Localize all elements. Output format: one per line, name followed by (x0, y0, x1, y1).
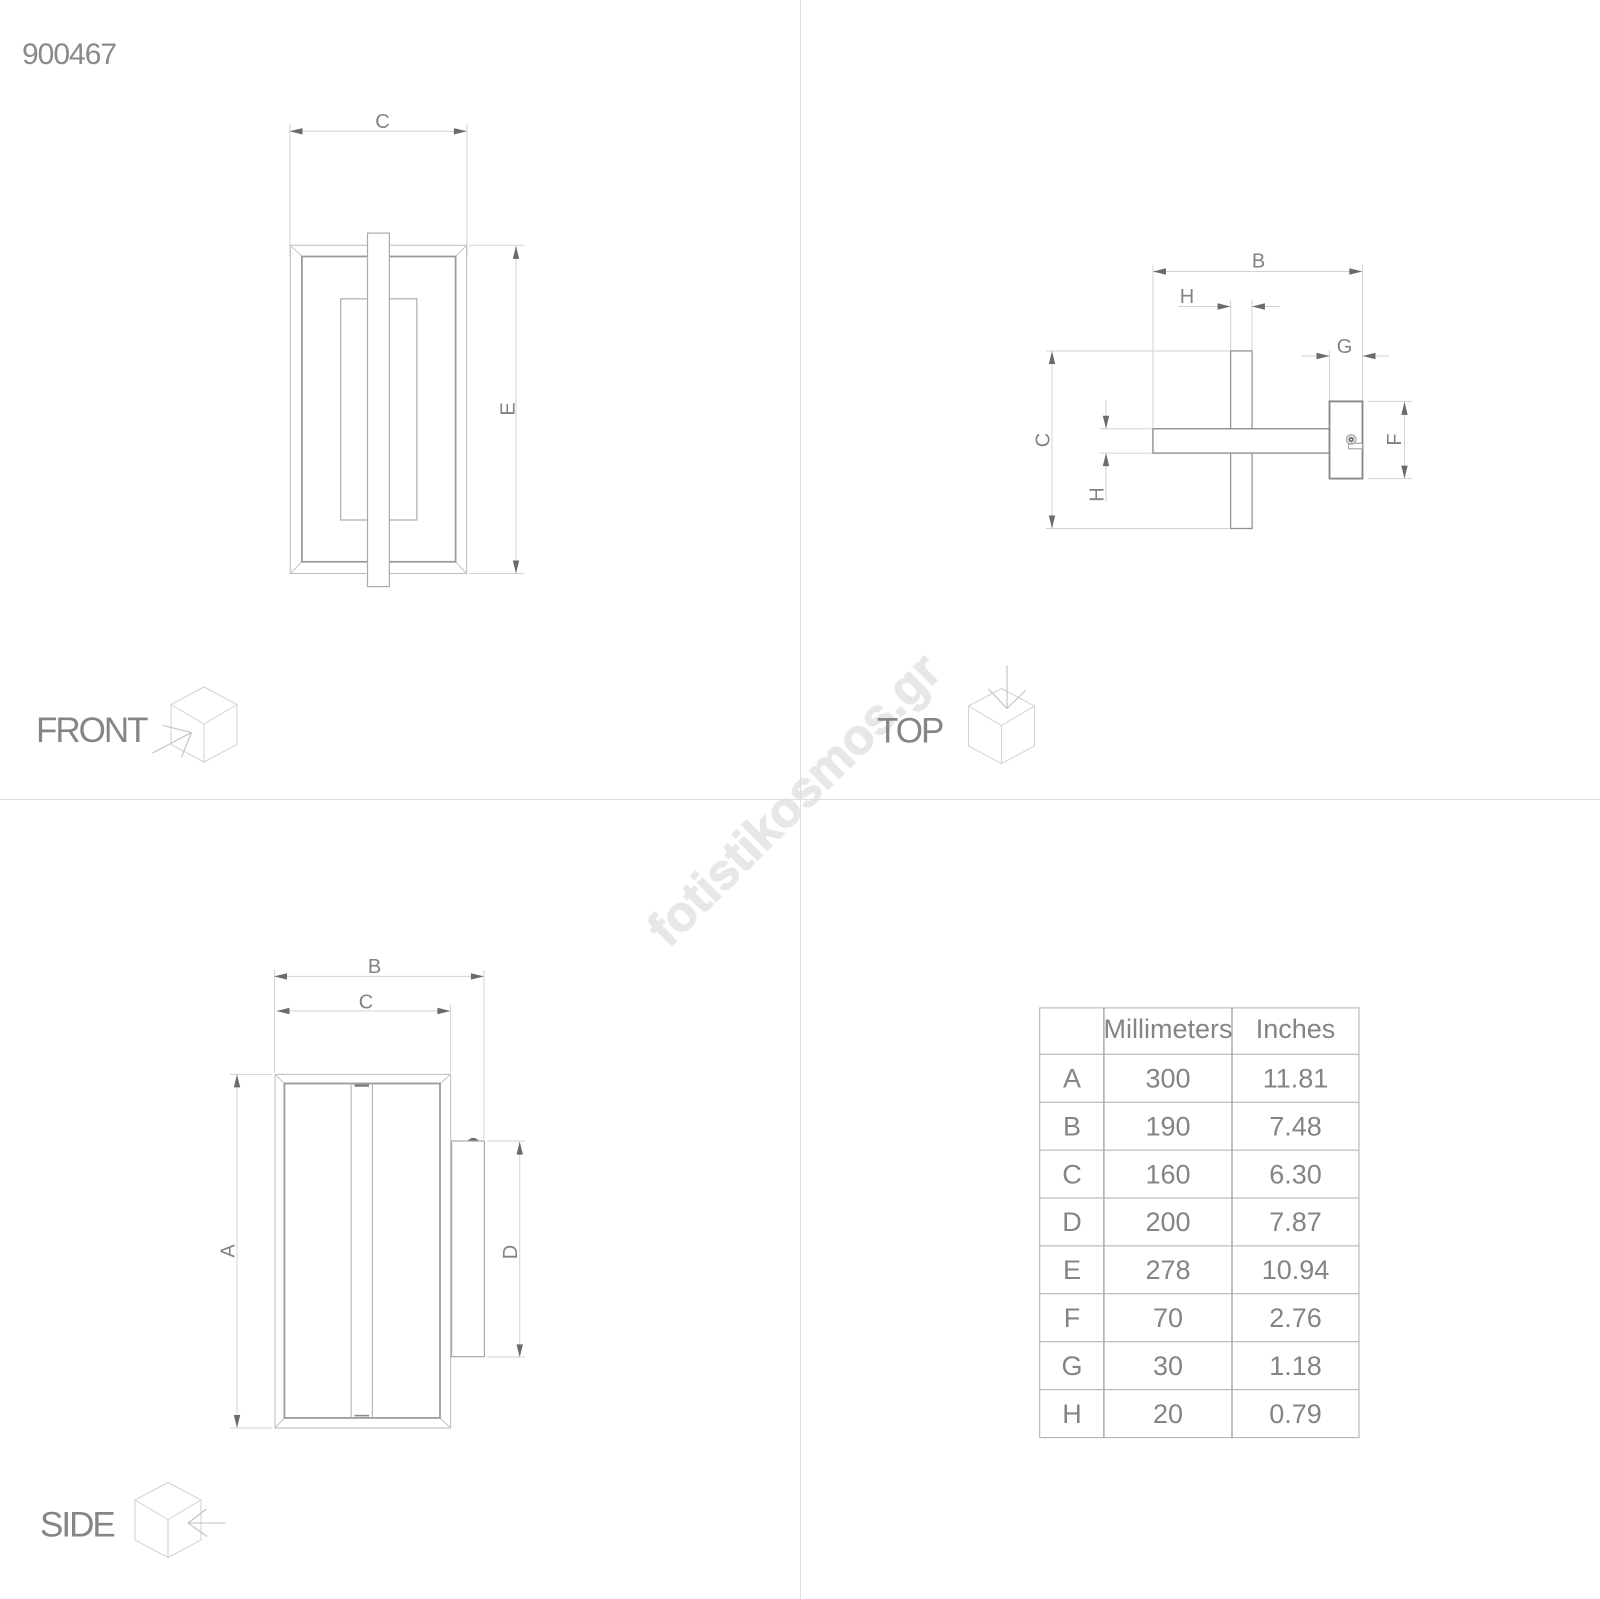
svg-text:G: G (1061, 1351, 1082, 1381)
svg-text:6.30: 6.30 (1269, 1159, 1322, 1189)
svg-text:1.18: 1.18 (1269, 1351, 1322, 1381)
svg-text:Millimeters: Millimeters (1103, 1014, 1232, 1044)
svg-text:C: C (1033, 433, 1055, 447)
svg-text:10.94: 10.94 (1262, 1255, 1330, 1285)
svg-text:20: 20 (1153, 1399, 1183, 1429)
svg-text:H: H (1087, 487, 1109, 501)
svg-text:FRONT: FRONT (36, 711, 148, 750)
svg-text:B: B (368, 956, 381, 978)
svg-text:E: E (1063, 1255, 1081, 1285)
svg-text:200: 200 (1145, 1207, 1190, 1237)
svg-text:H: H (1062, 1399, 1082, 1429)
svg-text:D: D (1062, 1207, 1082, 1237)
svg-text:0.79: 0.79 (1269, 1399, 1322, 1429)
svg-text:G: G (1337, 336, 1353, 358)
svg-text:900467: 900467 (22, 38, 116, 71)
svg-text:C: C (359, 992, 373, 1014)
svg-text:B: B (1252, 251, 1265, 273)
svg-text:190: 190 (1145, 1111, 1190, 1141)
svg-text:30: 30 (1153, 1351, 1183, 1381)
svg-text:D: D (500, 1245, 522, 1259)
svg-text:H: H (1180, 286, 1194, 308)
svg-text:SIDE: SIDE (40, 1506, 114, 1545)
svg-text:A: A (218, 1244, 240, 1258)
svg-text:278: 278 (1145, 1255, 1190, 1285)
svg-text:160: 160 (1145, 1159, 1190, 1189)
svg-text:C: C (1062, 1159, 1082, 1189)
svg-text:C: C (375, 111, 389, 133)
svg-text:7.87: 7.87 (1269, 1207, 1322, 1237)
svg-text:Inches: Inches (1256, 1014, 1336, 1044)
svg-text:300: 300 (1145, 1064, 1190, 1094)
svg-text:F: F (1064, 1303, 1081, 1333)
svg-text:A: A (1063, 1064, 1081, 1094)
svg-text:E: E (498, 402, 520, 415)
svg-text:2.76: 2.76 (1269, 1303, 1322, 1333)
svg-text:TOP: TOP (877, 712, 943, 751)
svg-text:70: 70 (1153, 1303, 1183, 1333)
svg-text:7.48: 7.48 (1269, 1111, 1322, 1141)
svg-text:B: B (1063, 1111, 1081, 1141)
svg-text:F: F (1384, 433, 1406, 445)
svg-text:11.81: 11.81 (1263, 1064, 1329, 1094)
